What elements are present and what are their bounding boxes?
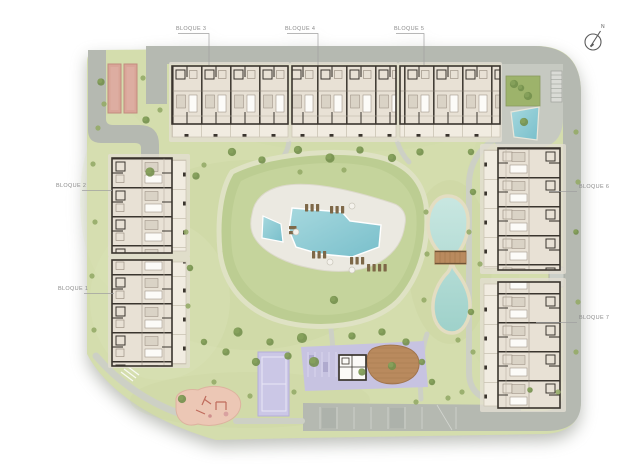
amenity-mark bbox=[323, 362, 328, 372]
block-3-label[interactable]: BLOQUE 3 bbox=[176, 27, 206, 33]
block-1-label[interactable]: BLOQUE 1 bbox=[58, 287, 88, 293]
block-5-label[interactable]: BLOQUE 5 bbox=[394, 27, 424, 33]
block-6-building[interactable] bbox=[484, 148, 560, 270]
play-feature bbox=[224, 412, 229, 417]
wooden-bridge bbox=[435, 251, 466, 264]
block-7-label[interactable]: BLOQUE 7 bbox=[579, 316, 609, 322]
stairs bbox=[551, 71, 562, 102]
block-6-label[interactable]: BLOQUE 6 bbox=[579, 185, 609, 191]
central-pool-area bbox=[219, 153, 427, 327]
parked-car-mark bbox=[322, 408, 336, 428]
block-4-label[interactable]: BLOQUE 4 bbox=[285, 27, 315, 33]
site bbox=[80, 34, 581, 441]
block-2-label[interactable]: BLOQUE 2 bbox=[56, 184, 86, 190]
block-3-building[interactable] bbox=[172, 66, 288, 137]
planter bbox=[506, 76, 540, 106]
site-plan-image: BLOQUE 3 BLOQUE 4 BLOQUE 5 BLOQUE 2 BLOQ… bbox=[0, 0, 631, 464]
block-1-building[interactable] bbox=[112, 260, 186, 366]
block-4-building[interactable] bbox=[292, 66, 396, 137]
playground[interactable] bbox=[176, 386, 241, 425]
community-building[interactable] bbox=[339, 355, 366, 380]
parked-car-mark bbox=[390, 408, 404, 428]
block-7-building[interactable] bbox=[484, 282, 560, 408]
paddle-court[interactable] bbox=[258, 352, 289, 416]
site-plan-drawing bbox=[0, 0, 631, 464]
play-feature bbox=[208, 414, 212, 418]
compass-icon bbox=[585, 31, 601, 50]
block-5-building[interactable] bbox=[400, 66, 500, 137]
